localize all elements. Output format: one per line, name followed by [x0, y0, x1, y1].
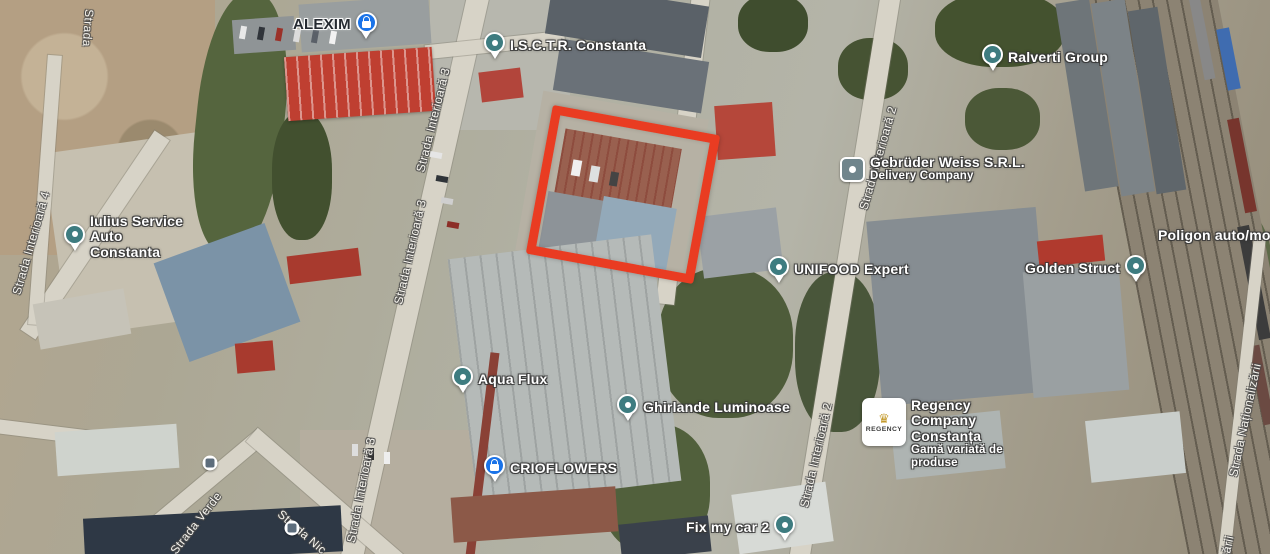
poi-iulius-service-auto[interactable]: Iulius Service Auto Constanta [64, 214, 196, 260]
poi-label: ALEXIM [293, 17, 351, 34]
place-pin-icon [452, 366, 473, 393]
poi-label: Regency Company ConstanțaGamă variată de… [911, 398, 1033, 469]
red-roof-building [235, 340, 275, 373]
place-pin-icon [768, 256, 789, 283]
poi-fix-my-car-2[interactable]: Fix my car 2 [686, 514, 795, 541]
business-square-icon [840, 157, 865, 182]
checker-roof-building [714, 102, 776, 160]
map-canvas[interactable]: Strada Strada Interioară 3 Strada Interi… [0, 0, 1270, 554]
poi-poligon-auto-moto[interactable]: Poligon auto/moto [1158, 228, 1270, 243]
trees [272, 112, 332, 240]
poi-label: Fix my car 2 [686, 520, 769, 535]
poi-label: Ghirlande Luminoase [643, 400, 790, 415]
poi-ghirlande-luminoase[interactable]: Ghirlande Luminoase [617, 394, 790, 421]
poi-aqua-flux[interactable]: Aqua Flux [452, 366, 547, 393]
warehouse [1023, 264, 1130, 398]
street-label: Strada [80, 9, 97, 48]
regency-logo-icon: ♛ REGENCY [862, 398, 906, 446]
car [352, 444, 358, 456]
red-roof-building [287, 248, 362, 285]
poi-gebruder-weiss[interactable]: Gebrüder Weiss S.R.L.Delivery Company [840, 155, 1025, 183]
building [1085, 411, 1186, 483]
poi-label: Poligon auto/moto [1158, 228, 1270, 243]
building [55, 424, 180, 476]
car [447, 221, 460, 229]
big-warehouse [866, 207, 1051, 406]
red-roof-building [478, 68, 523, 103]
poi-regency-company[interactable]: ♛ REGENCY Regency Company ConstanțaGamă … [862, 398, 1033, 469]
place-pin-icon [484, 32, 505, 59]
transit-stop-icon[interactable] [203, 456, 218, 471]
place-pin-icon [774, 514, 795, 541]
highlighted-property-outline [526, 105, 720, 284]
poi-label: Golden Struct [1025, 261, 1120, 276]
poi-alexim[interactable]: ALEXIM [293, 12, 377, 39]
poi-subtitle: Delivery Company [870, 170, 1025, 183]
poi-label: I.S.C.T.R. Constanta [510, 38, 646, 53]
red-roof-warehouse [284, 47, 436, 121]
poi-golden-struct[interactable]: Golden Struct [1025, 255, 1146, 282]
poi-label: CRIOFLOWERS [510, 461, 617, 476]
trees [965, 88, 1040, 150]
poi-ralverti-group[interactable]: Ralverti Group [982, 44, 1108, 71]
poi-subtitle: Gamă variată de produse [911, 444, 1006, 469]
place-pin-icon [1125, 255, 1146, 282]
crown-icon: ♛ [878, 412, 890, 425]
transit-stop-icon[interactable] [285, 521, 300, 536]
shopping-bag-icon [484, 455, 505, 482]
poi-label: Aqua Flux [478, 372, 547, 387]
trees [738, 0, 808, 52]
place-pin-icon [64, 224, 85, 251]
shopping-bag-icon [356, 12, 377, 39]
poi-label: Gebrüder Weiss S.R.L.Delivery Company [870, 155, 1025, 183]
poi-label: Ralverti Group [1008, 50, 1108, 65]
place-pin-icon [617, 394, 638, 421]
poi-unifood-expert[interactable]: UNIFOOD Expert [768, 256, 909, 283]
poi-label: UNIFOOD Expert [794, 262, 909, 277]
car [384, 452, 390, 464]
poi-crioflowers[interactable]: CRIOFLOWERS [484, 455, 617, 482]
poi-label: Iulius Service Auto Constanta [90, 214, 196, 260]
poi-isctr-constanta[interactable]: I.S.C.T.R. Constanta [484, 32, 646, 59]
place-pin-icon [982, 44, 1003, 71]
